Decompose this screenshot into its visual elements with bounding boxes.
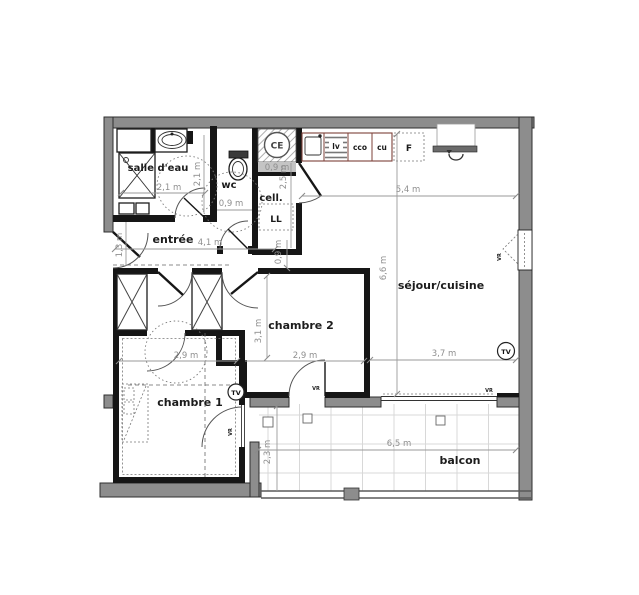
wall-left-stub (104, 395, 113, 408)
dim-sejour-lower: 3,7 m (432, 349, 457, 359)
wall-hall-2 (192, 268, 222, 274)
wall-sdb-bottom (113, 215, 175, 222)
sill-stub-3 (497, 397, 519, 407)
wardrobe-cell (124, 388, 134, 400)
kitchen-counter: lv cco cu F (302, 133, 424, 161)
wall-left-upper (104, 117, 113, 232)
washing-machine-label: LL (270, 215, 282, 225)
roller-shutter-label: VR (485, 388, 493, 394)
toilet-tank (229, 151, 248, 158)
wall-ch1-top-r (185, 330, 245, 336)
dim-balcon-length: 6,5 m (387, 439, 412, 449)
cell-door-leaf (299, 163, 321, 196)
balcony-fixture (303, 414, 312, 423)
label-salle-deau: salle d'eau (128, 163, 189, 174)
sill-stub-1 (250, 397, 289, 407)
balcony-details (261, 414, 532, 500)
label-balcon: balcon (440, 454, 481, 467)
hood-bar (433, 146, 477, 152)
wall-recess (437, 124, 475, 146)
wall-sdb-wc (210, 126, 217, 222)
radiator-1 (119, 203, 134, 214)
wall-sdb-bottom-stub (203, 215, 217, 222)
dim-sdb-w: 2,1 m (157, 183, 182, 193)
window-open-hint (503, 234, 518, 264)
wall-right (519, 117, 532, 500)
interior-walls (113, 126, 519, 483)
wardrobe-cell (124, 402, 134, 414)
oven-label: cu (377, 143, 387, 152)
ch2-door-leaf (231, 272, 258, 294)
roller-shutter-label: VR (312, 386, 320, 392)
dim-ch1-width: 2,9 m (174, 351, 199, 361)
dim-entree: 1,3 m (115, 233, 125, 258)
wall-cell-right-top (296, 128, 302, 163)
wc-fixtures (229, 151, 248, 180)
tv-outlet-label: TV (231, 389, 240, 397)
ce-bottom-bar (258, 172, 296, 176)
fridge-label: F (406, 144, 412, 154)
wardrobe-diagonal (124, 386, 146, 440)
sill-stub-2 (325, 397, 381, 407)
wall-sejour-left (364, 268, 370, 398)
wall-ch1-bottom (113, 477, 245, 483)
exterior-walls (100, 117, 534, 500)
label-chambre2: chambre 2 (268, 319, 333, 332)
dim-sdb-d: 2,1 m (193, 162, 203, 187)
hood-vent (433, 124, 477, 160)
roller-shutter-label: VR (228, 428, 234, 436)
closet-right (192, 274, 222, 330)
wall-hall-1 (113, 268, 158, 274)
balcony-fixture (436, 416, 445, 425)
dim-ch2-depth: 3,1 m (254, 319, 264, 344)
roller-shutter-label: VR (497, 253, 503, 261)
wall-hall-3 (258, 268, 370, 274)
dim-ch2-width: 2,9 m (293, 351, 318, 361)
sejour-right-window (518, 230, 532, 270)
hob-label: cco (353, 143, 367, 152)
wall-sejour-bottom-stub (497, 393, 519, 397)
wall-ch1-top-l (113, 330, 147, 336)
slab-bottom-left (100, 483, 261, 497)
wall-cell-left (252, 128, 258, 255)
cupboard (117, 129, 151, 152)
corridor-door-leaf (158, 272, 183, 295)
label-wc: wc (221, 180, 236, 191)
radiator-2 (136, 203, 149, 214)
railing-post (344, 488, 359, 500)
balcony-fixture (263, 417, 273, 427)
floor-plan: CE 0,9 m LL lv cco cu F (0, 0, 639, 595)
cell-door-arc (299, 196, 321, 203)
dim-wc: 0,9 m (219, 199, 244, 209)
wc-door-leaf (228, 229, 248, 249)
dim-ch2-door: 0,9 m (274, 240, 284, 265)
label-cellier: cell. (259, 193, 282, 204)
tv-outlet-label: TV (501, 348, 510, 356)
wall-cell-right-bottom (296, 203, 302, 255)
label-entree: entrée (153, 233, 194, 246)
wall-ch2-bottom-w (245, 392, 289, 398)
dim-balcon-depth: 2,3 m (263, 440, 273, 465)
kitchen-faucet-dot (318, 134, 321, 137)
label-chambre1: chambre 1 (157, 396, 222, 409)
dishwasher-label: lv (332, 142, 340, 151)
dim-cell: 2,5 m (279, 165, 289, 190)
label-sejour: séjour/cuisine (398, 279, 484, 292)
ch1-balcony-door-arc (202, 407, 242, 447)
cellier-equipment: CE 0,9 m LL (258, 129, 296, 230)
wall-ch2-bottom-e (325, 392, 370, 398)
water-heater-label: CE (271, 142, 284, 152)
dim-hall: 4,1 m (198, 238, 223, 248)
faucet-dot (171, 133, 174, 136)
vent-arrow-icon (449, 154, 463, 160)
dim-sejour-length: 6,6 m (379, 256, 389, 281)
dim-sejour-width: 5,4 m (396, 185, 421, 195)
closet-left (117, 274, 147, 330)
